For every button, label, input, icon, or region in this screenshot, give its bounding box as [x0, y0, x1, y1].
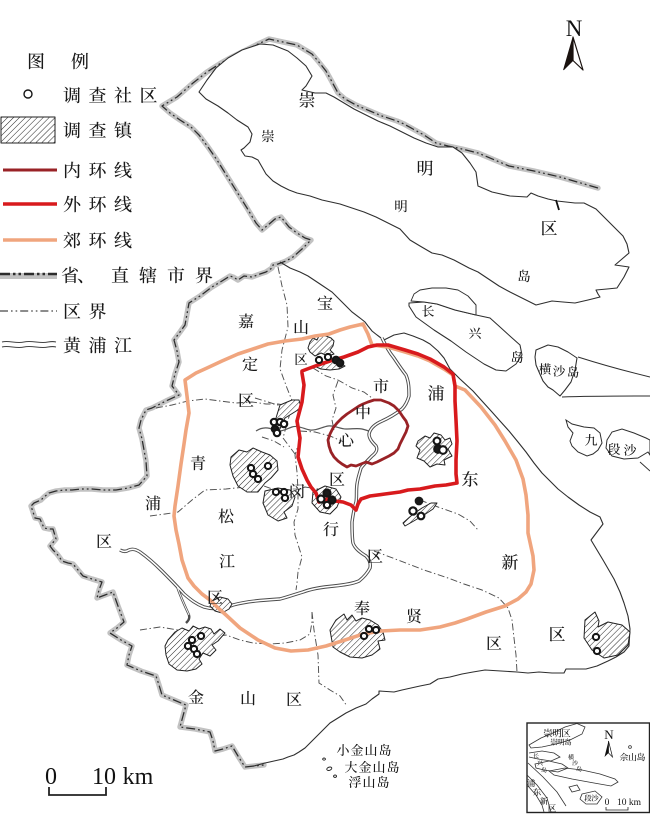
svg-text:km: km: [123, 764, 154, 790]
svg-text:N: N: [566, 16, 583, 41]
svg-text:N: N: [604, 727, 614, 742]
svg-text:0: 0: [605, 798, 610, 808]
svg-text:0: 0: [45, 764, 57, 790]
svg-text:10: 10: [92, 764, 116, 790]
svg-text:10 km: 10 km: [617, 798, 642, 808]
